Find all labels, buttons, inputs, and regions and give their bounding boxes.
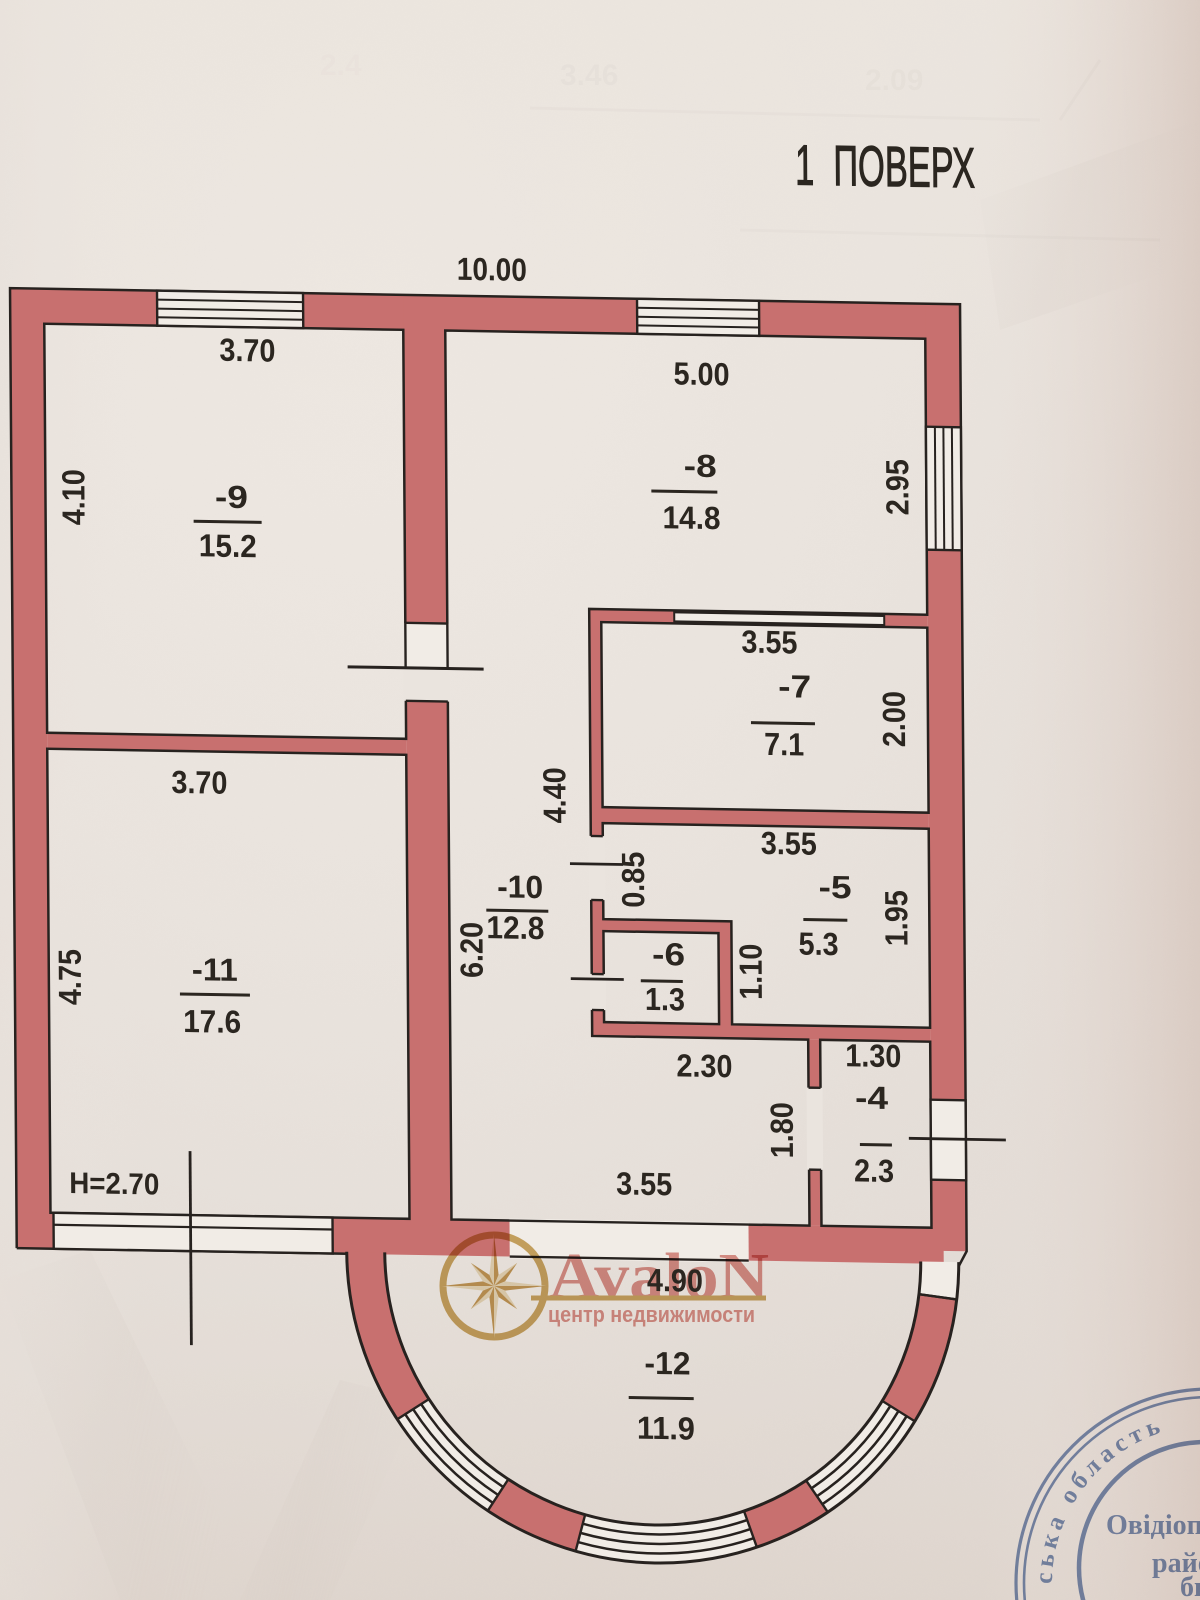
svg-text:11.9: 11.9 bbox=[637, 1410, 695, 1447]
svg-text:4.10: 4.10 bbox=[55, 469, 91, 526]
svg-text:-8: -8 bbox=[684, 448, 717, 485]
svg-text:14.8: 14.8 bbox=[662, 499, 720, 536]
svg-text:7.1: 7.1 bbox=[764, 726, 804, 763]
svg-text:10.00: 10.00 bbox=[457, 251, 527, 288]
svg-text:1.95: 1.95 bbox=[878, 890, 914, 947]
svg-text:бюро: бюро bbox=[1180, 1572, 1200, 1600]
svg-text:H=2.70: H=2.70 bbox=[69, 1167, 159, 1202]
svg-text:4.75: 4.75 bbox=[52, 949, 88, 1006]
svg-text:12.8: 12.8 bbox=[486, 909, 544, 946]
svg-text:2.95: 2.95 bbox=[879, 459, 915, 516]
svg-text:3.55: 3.55 bbox=[761, 825, 817, 862]
svg-text:3.55: 3.55 bbox=[616, 1165, 672, 1202]
svg-text:3.55: 3.55 bbox=[741, 624, 797, 661]
svg-text:17.6: 17.6 bbox=[183, 1003, 241, 1040]
svg-text:2.3: 2.3 bbox=[854, 1152, 894, 1189]
svg-text:2.30: 2.30 bbox=[676, 1047, 732, 1084]
svg-text:5.3: 5.3 bbox=[798, 925, 838, 962]
svg-text:-7: -7 bbox=[778, 668, 811, 705]
svg-text:5.00: 5.00 bbox=[673, 355, 729, 392]
svg-text:-9: -9 bbox=[215, 479, 248, 516]
svg-text:-10: -10 bbox=[497, 868, 543, 905]
svg-text:0.85: 0.85 bbox=[615, 851, 651, 908]
svg-text:1.3: 1.3 bbox=[645, 981, 685, 1018]
svg-text:-12: -12 bbox=[644, 1345, 690, 1382]
svg-text:4.90: 4.90 bbox=[647, 1262, 703, 1299]
svg-text:3.70: 3.70 bbox=[171, 764, 227, 801]
svg-text:1.30: 1.30 bbox=[845, 1037, 901, 1074]
svg-text:1 ПОВЕРХ: 1 ПОВЕРХ bbox=[795, 134, 975, 201]
svg-text:1.10: 1.10 bbox=[733, 943, 769, 1000]
svg-text:6.20: 6.20 bbox=[453, 922, 489, 979]
svg-text:-4: -4 bbox=[855, 1079, 888, 1116]
svg-text:-5: -5 bbox=[818, 869, 851, 906]
svg-text:2.00: 2.00 bbox=[876, 691, 912, 748]
svg-text:3.70: 3.70 bbox=[219, 332, 275, 369]
svg-text:-11: -11 bbox=[192, 951, 238, 988]
svg-text:1.80: 1.80 bbox=[764, 1102, 800, 1159]
svg-text:15.2: 15.2 bbox=[199, 527, 257, 564]
svg-text:4.40: 4.40 bbox=[536, 767, 572, 824]
svg-text:центр недвижимости: центр недвижимости bbox=[548, 1302, 755, 1327]
svg-text:-6: -6 bbox=[652, 936, 685, 973]
svg-text:Овідіопол: Овідіопол bbox=[1106, 1510, 1200, 1541]
